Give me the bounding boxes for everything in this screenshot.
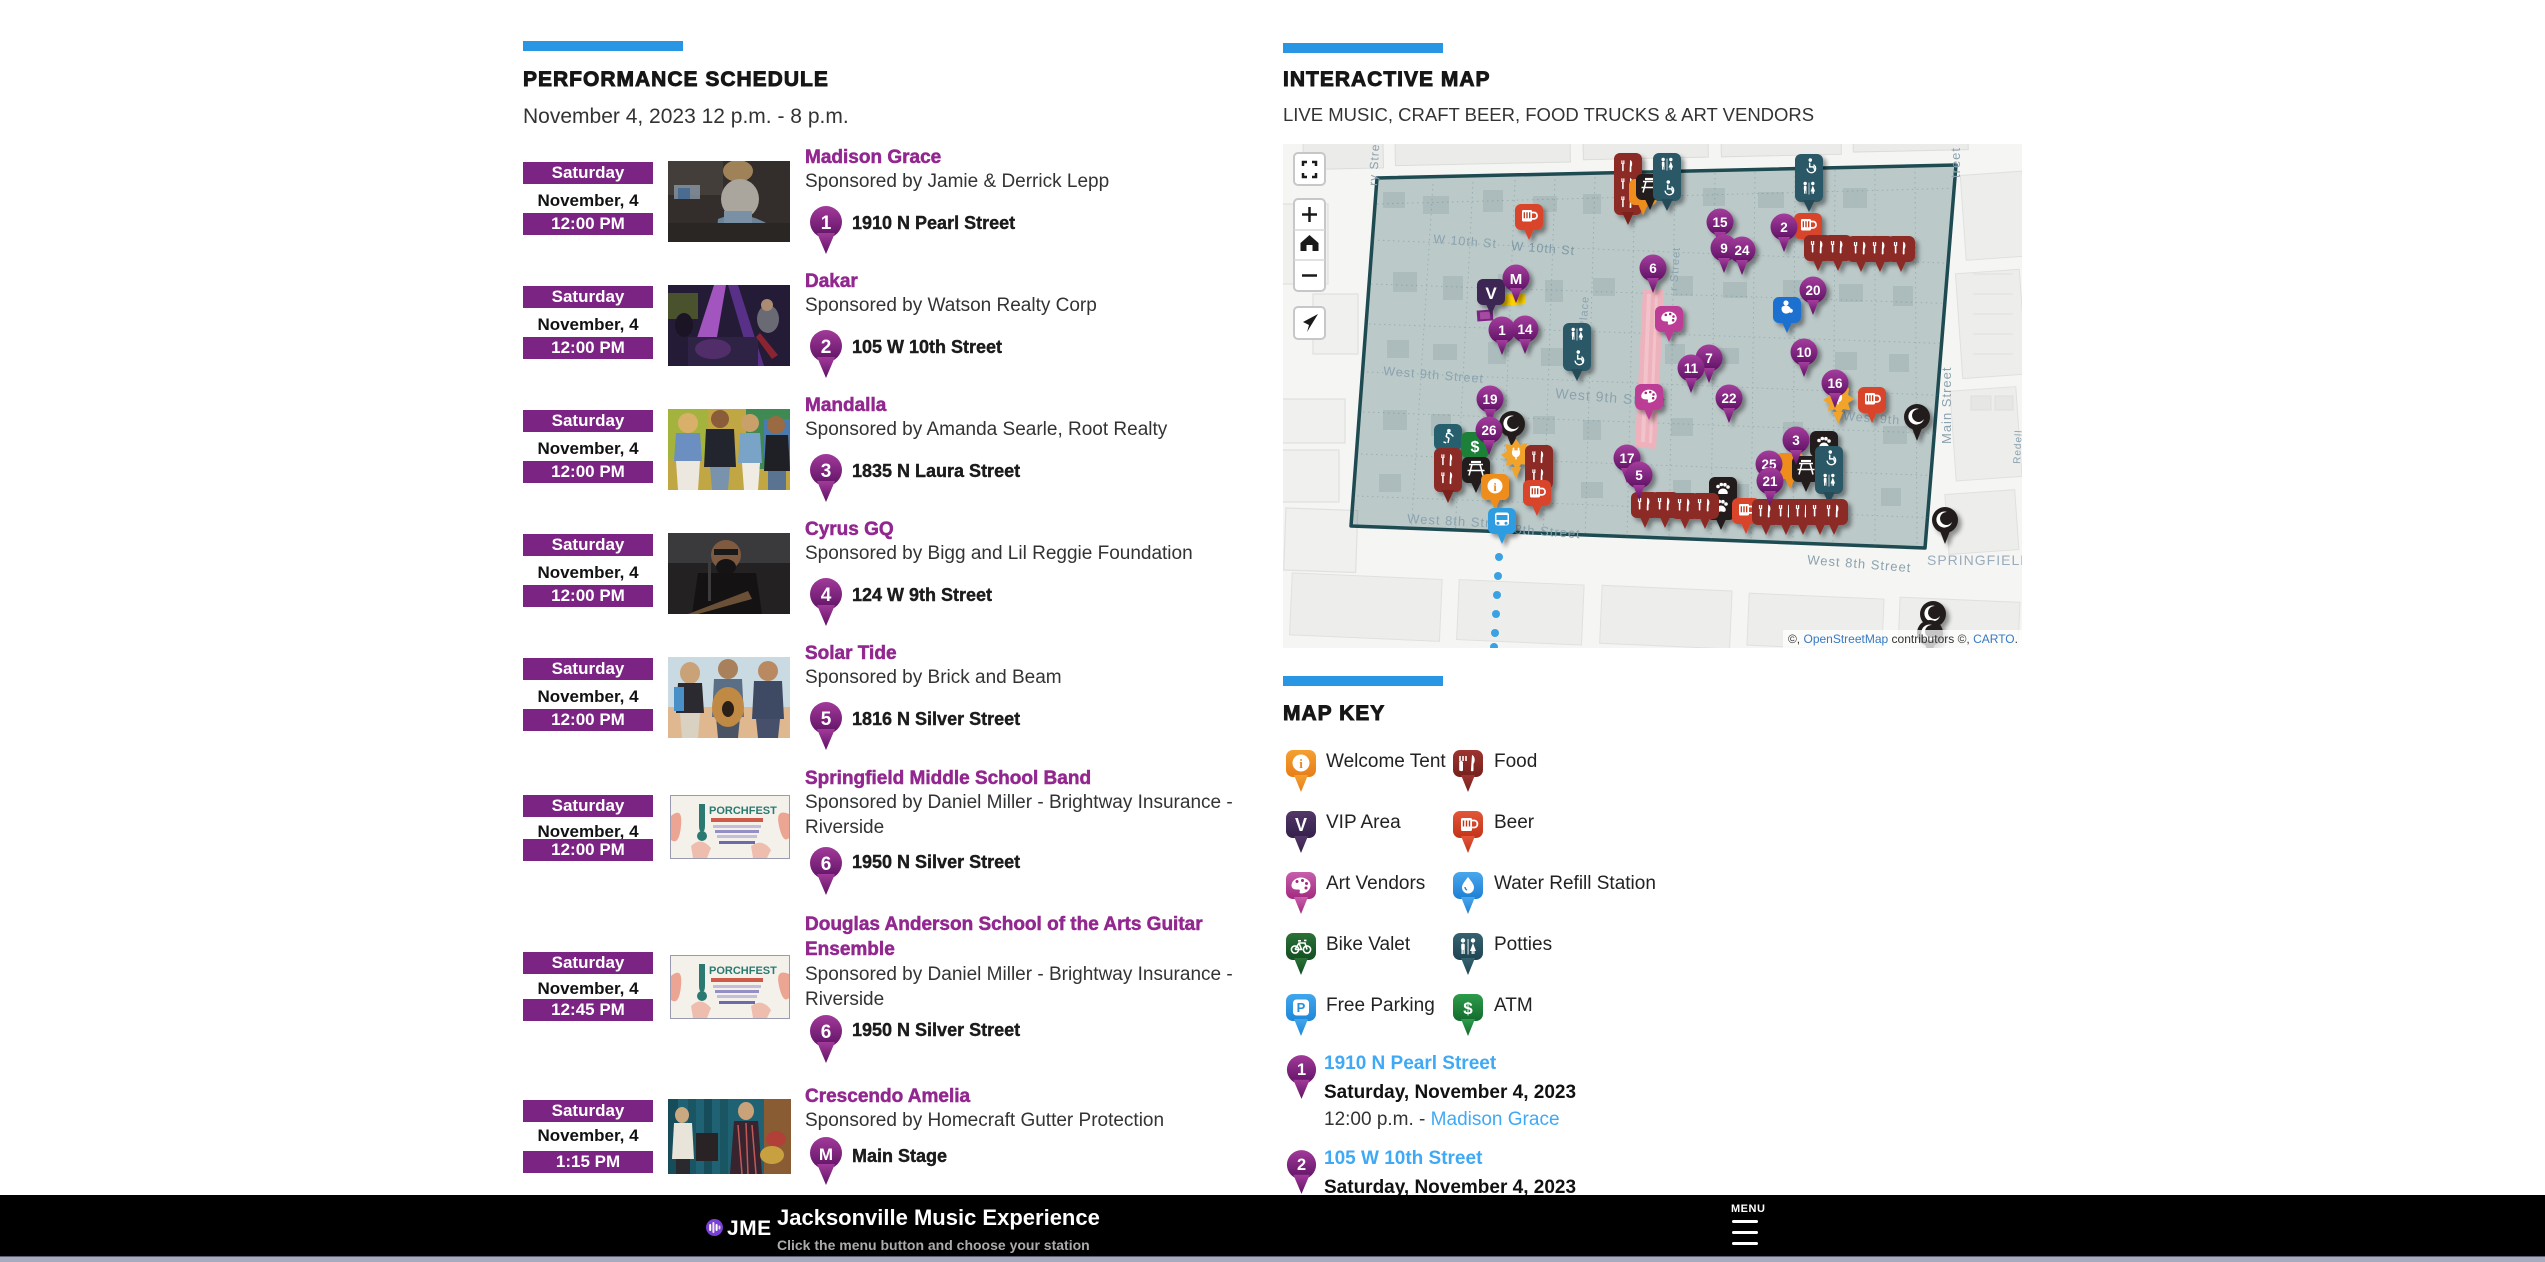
svg-text:20: 20 <box>1805 283 1820 298</box>
svg-text:7: 7 <box>1705 351 1713 366</box>
svg-text:11: 11 <box>1684 361 1699 376</box>
svg-text:3: 3 <box>821 461 832 482</box>
svg-text:24: 24 <box>1734 243 1750 258</box>
svg-text:M: M <box>819 1145 833 1164</box>
svg-text:$: $ <box>1463 999 1473 1018</box>
svg-text:10: 10 <box>1796 345 1811 360</box>
svg-text:6: 6 <box>821 1022 832 1043</box>
svg-text:V: V <box>1295 815 1307 835</box>
svg-text:22: 22 <box>1721 391 1736 406</box>
svg-text:2: 2 <box>1297 1156 1306 1174</box>
svg-text:1: 1 <box>821 213 832 234</box>
svg-text:$: $ <box>1471 439 1480 456</box>
svg-text:6: 6 <box>1649 261 1657 276</box>
svg-text:©, OpenStreetMap contributors: ©, OpenStreetMap contributors ©, CARTO. <box>1788 632 2018 646</box>
svg-text:19: 19 <box>1482 392 1497 407</box>
svg-text:1: 1 <box>1498 323 1506 338</box>
svg-text:16: 16 <box>1827 376 1843 391</box>
svg-text:5: 5 <box>821 709 832 730</box>
svg-text:PORCHFEST: PORCHFEST <box>709 805 777 817</box>
svg-text:M: M <box>1510 271 1523 288</box>
svg-text:Main Street: Main Street <box>1939 367 1954 444</box>
svg-text:9: 9 <box>1720 241 1728 256</box>
svg-text:i: i <box>1299 756 1303 771</box>
svg-text:ry Street: ry Street <box>1366 144 1383 186</box>
svg-text:1: 1 <box>1297 1061 1306 1079</box>
svg-text:Redell: Redell <box>2012 429 2022 464</box>
svg-text:2: 2 <box>821 337 832 358</box>
svg-text:2: 2 <box>1780 220 1788 235</box>
svg-text:21: 21 <box>1762 474 1778 489</box>
svg-text:V: V <box>1485 284 1497 303</box>
svg-text:6: 6 <box>821 854 832 875</box>
svg-text:SPRINGFIELD: SPRINGFIELD <box>1927 552 2022 568</box>
svg-text:5: 5 <box>1635 468 1643 483</box>
svg-text:P: P <box>1297 1000 1306 1015</box>
svg-text:26: 26 <box>1481 423 1497 438</box>
svg-text:treet: treet <box>1948 147 1963 178</box>
svg-text:PORCHFEST: PORCHFEST <box>709 965 777 977</box>
svg-text:4: 4 <box>821 585 832 606</box>
svg-text:15: 15 <box>1712 215 1728 230</box>
svg-text:14: 14 <box>1517 322 1533 337</box>
svg-text:3: 3 <box>1792 433 1800 448</box>
